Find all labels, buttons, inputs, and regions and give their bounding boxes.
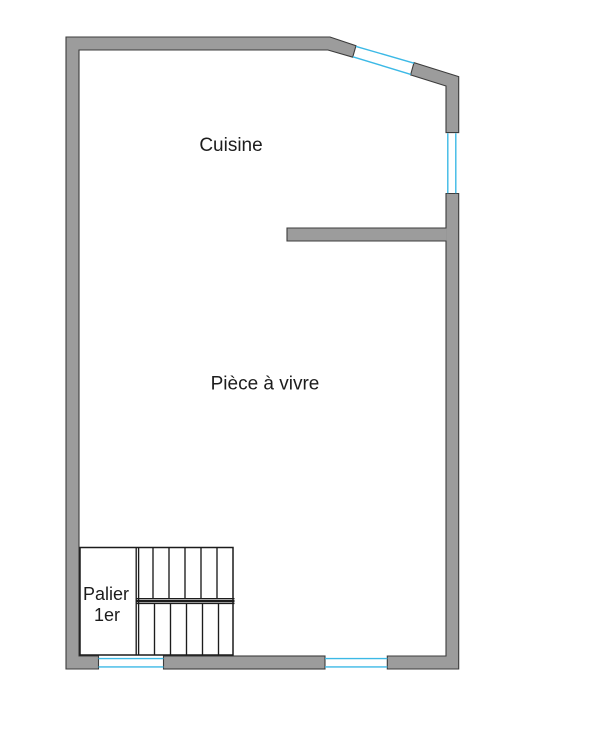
svg-text:Palier: Palier: [83, 584, 129, 604]
svg-text:Pièce à vivre: Pièce à vivre: [211, 374, 320, 395]
svg-text:1er: 1er: [94, 605, 120, 625]
svg-text:Cuisine: Cuisine: [199, 135, 262, 156]
